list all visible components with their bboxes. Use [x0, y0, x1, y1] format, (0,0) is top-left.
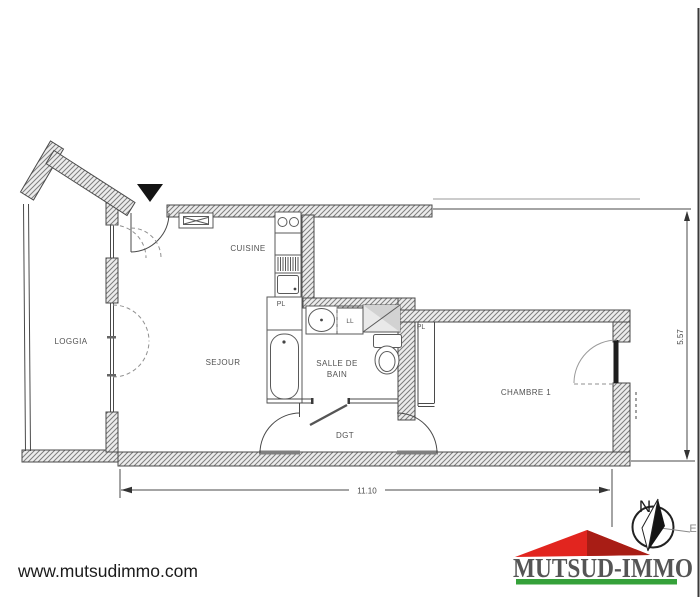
loggia-glazing	[24, 204, 150, 451]
bathtub-inner	[271, 334, 299, 399]
dim-arrow-right	[599, 487, 610, 493]
bath-door-jamb-left	[311, 398, 314, 404]
compass-east-label: E	[689, 523, 696, 535]
dim-arrow-left	[121, 487, 132, 493]
bathtub-tap	[282, 340, 285, 343]
window-jamb-tick-1	[107, 336, 116, 339]
threshold-right	[397, 451, 438, 455]
wall-chambre-right-upper	[613, 322, 630, 342]
sink-drain	[294, 288, 297, 291]
chambre-closet-lines	[418, 322, 435, 407]
logo-brand-text: MUTSUD-IMMO	[513, 553, 693, 583]
chambre-closet-label: PL	[417, 324, 426, 331]
dim-height-value: 5.57	[676, 329, 685, 345]
wall-loggia-right-seg3	[106, 412, 118, 452]
bath-door-leaf-open	[310, 405, 347, 425]
room-label-salle-de-bain-1: SALLE DE	[316, 359, 357, 368]
door-swing-dgt-left	[260, 413, 300, 453]
washbasin-drain	[320, 319, 323, 322]
washing-machine-label: LL	[346, 318, 354, 325]
wall-loggia-bottom	[22, 450, 118, 462]
kitchen-closet-label: PL	[277, 301, 286, 308]
bath-door-jamb-right	[348, 398, 351, 404]
loggia-outer-wall-lines	[24, 204, 31, 451]
chambre-fixtures: PL	[417, 322, 636, 419]
loggia-window-lines	[111, 225, 114, 412]
entrance-door-swing-dashed	[131, 228, 161, 258]
wall-angled-top	[46, 151, 135, 216]
dim-width-value: 11.10	[357, 487, 377, 496]
compass-north-label: N	[639, 497, 651, 516]
room-label-loggia: LOGGIA	[54, 337, 87, 346]
chambre-window-leaf	[614, 340, 619, 383]
kitchen-fixtures: PL	[267, 212, 302, 330]
room-label-salle-de-bain-2: BAIN	[327, 370, 347, 379]
wall-loggia-right-seg2	[106, 258, 118, 303]
entrance-door-swing	[131, 213, 169, 252]
room-label-sejour: SEJOUR	[206, 358, 241, 367]
dim-arrow-down	[684, 450, 690, 460]
dimension-width: 11.10	[120, 469, 612, 527]
chambre-window-swing	[574, 340, 617, 383]
dish-rack	[278, 257, 298, 271]
french-door-swing-double	[113, 305, 149, 377]
wall-chambre-top	[398, 310, 630, 322]
room-label-cuisine: CUISINE	[230, 244, 265, 253]
brand-logo: MUTSUD-IMMO	[513, 530, 693, 585]
wall-kitchen-right	[302, 215, 314, 300]
room-label-dgt: DGT	[336, 431, 354, 440]
wall-chambre-right-lower	[613, 383, 630, 452]
window-jamb-tick-2	[107, 374, 116, 377]
compass-rose: N E	[633, 497, 697, 551]
threshold-left	[259, 451, 300, 455]
entrance-arrow-marker	[137, 184, 163, 202]
floorplan-svg: PL LL PL LOGG	[0, 0, 700, 597]
dimension-height: 5.57	[433, 199, 695, 461]
dim-arrow-up	[684, 211, 690, 221]
logo-green-bar	[516, 579, 677, 585]
website-text: www.mutsudimmo.com	[17, 561, 198, 581]
entrance	[131, 184, 213, 258]
kitchen-sink	[278, 276, 299, 294]
floorplan-page: PL LL PL LOGG	[0, 0, 700, 597]
wall-bottom	[118, 452, 630, 466]
room-label-chambre1: CHAMBRE 1	[501, 388, 551, 397]
